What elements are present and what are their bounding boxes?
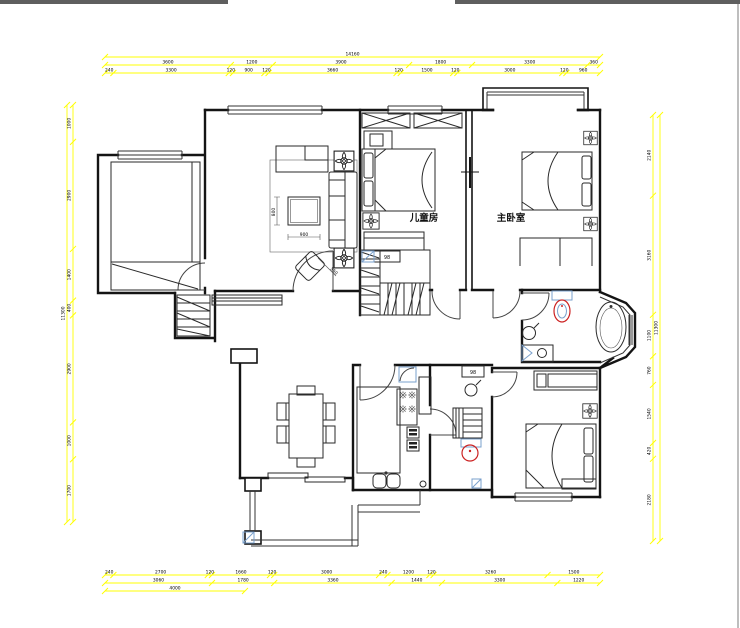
toilet-1 [552,291,572,322]
svg-text:3300: 3300 [494,578,505,584]
bathroom-1 [522,291,626,362]
svg-text:120: 120 [427,570,436,576]
window-top-border-bar [455,0,740,4]
svg-text:1200: 1200 [246,60,257,66]
wardrobe: 98 [360,250,430,315]
children-bed [362,149,435,211]
dimension-chain-right: 1130021403160110076015404202180 [647,112,664,544]
svg-text:400: 400 [67,304,73,313]
bathtub [596,302,626,352]
bedroom-door [492,372,517,397]
doors [178,251,549,435]
svg-text:3000: 3000 [504,68,515,74]
kitchen-door-symbol-box [399,367,416,382]
svg-text:3160: 3160 [647,249,653,260]
svg-text:120: 120 [394,68,403,74]
svg-text:11300: 11300 [654,321,660,335]
master-bed [522,152,592,210]
drawer-stack [407,427,419,451]
bath2-tiny-label: 98 [470,370,476,376]
svg-text:3660: 3660 [327,68,338,74]
svg-text:120: 120 [560,68,569,74]
svg-text:14160: 14160 [346,52,360,58]
double-sink [373,471,400,488]
svg-text:3300: 3300 [524,60,535,66]
svg-text:3900: 3900 [335,60,346,66]
kitchen-door [360,365,395,400]
floor-drain [472,479,481,488]
svg-text:1780: 1780 [237,578,248,584]
master-door [493,291,520,318]
master-bedroom: 主卧室 [497,131,598,266]
bed-2 [526,424,596,488]
wardrobe-2 [534,371,597,390]
svg-text:120: 120 [451,68,460,74]
tv-cabinet [276,146,328,172]
sink-round [523,323,540,340]
plant-stand [363,213,379,229]
svg-text:960: 960 [579,68,588,74]
entry-mat [212,295,282,305]
svg-text:3360: 3360 [327,578,338,584]
shoe-cabinet [177,295,210,336]
svg-text:3260: 3260 [485,570,496,576]
top-cabinets [362,113,462,128]
balcony-sliding-door [268,473,345,482]
living-window [228,106,322,114]
window-top-border [0,0,740,4]
dining-table [277,386,335,467]
svg-text:1500: 1500 [421,68,432,74]
children-room-label: 儿童房 [409,212,439,224]
svg-text:2180: 2180 [647,494,653,505]
svg-text:4000: 4000 [169,586,180,592]
drain-icon [420,481,426,487]
master-nightstand [584,131,598,145]
dim-800: 800 [271,208,277,217]
svg-text:240: 240 [379,570,388,576]
entry-area [177,295,282,336]
svg-text:240: 240 [105,570,114,576]
svg-text:760: 760 [647,366,653,375]
svg-text:1540: 1540 [647,408,653,419]
svg-text:2140: 2140 [647,150,653,161]
svg-text:1220: 1220 [573,578,584,584]
coffee-table-dimensions: 800 900 [271,197,320,240]
master-bay-window [483,88,588,110]
rug-outline [270,160,357,252]
bedroom-window [515,493,572,501]
svg-text:360: 360 [590,60,599,66]
dimension-chain-left: 11300100029001400400290010001700 [61,102,77,525]
master-desk [520,238,592,266]
wall-break-marker [461,157,479,188]
bath-bay-window [600,297,632,363]
floor-plan-canvas: 800 900 550 [0,0,740,628]
shower [453,408,482,438]
closet-tiny-label: 98 [384,255,390,261]
dim-900: 900 [300,232,309,238]
left-room-window [118,151,182,159]
washing-machine [522,345,553,362]
svg-text:120: 120 [268,570,277,576]
sofa [329,172,357,248]
nightstand-lamp [364,131,392,149]
bedroom-2 [526,371,597,489]
svg-text:3300: 3300 [165,68,176,74]
kitchen [357,377,431,488]
master-nightstand [584,217,598,231]
svg-text:1100: 1100 [647,330,653,341]
svg-text:1500: 1500 [568,570,579,576]
svg-text:3000: 3000 [321,570,332,576]
svg-text:900: 900 [244,68,253,74]
children-room: 98 儿童房 [360,113,462,315]
plant-side-table [334,151,354,171]
master-bedroom-label: 主卧室 [497,212,526,224]
svg-text:420: 420 [647,447,653,456]
svg-text:120: 120 [227,68,236,74]
coffee-table [288,197,320,225]
svg-text:1400: 1400 [67,269,73,280]
children-door [432,291,460,319]
svg-text:1660: 1660 [235,570,246,576]
svg-text:120: 120 [206,570,215,576]
svg-text:1440: 1440 [411,578,422,584]
dimension-chain-top: 1416036001200390018003300360240330012090… [102,52,603,77]
svg-text:2700: 2700 [155,570,166,576]
dining-room [243,386,335,543]
svg-text:2900: 2900 [67,363,73,374]
nightstand-2 [583,404,597,418]
window-top-border-bar [0,0,228,4]
living-room: 800 900 550 [270,146,357,282]
toilet-2 [461,439,481,461]
living-hall-door [293,251,333,291]
sink-2 [465,380,481,396]
entry-column [231,349,257,363]
svg-text:240: 240 [105,68,114,74]
bath2-door [430,409,456,435]
svg-text:3060: 3060 [153,578,164,584]
svg-text:1700: 1700 [67,485,73,496]
svg-text:1800: 1800 [435,60,446,66]
svg-text:1200: 1200 [403,570,414,576]
svg-text:1000: 1000 [67,118,73,129]
svg-text:2900: 2900 [67,190,73,201]
bathroom-2: 98 [453,366,484,488]
desk [364,232,424,250]
svg-text:3600: 3600 [162,60,173,66]
svg-text:120: 120 [262,68,271,74]
bath1-door [522,293,549,320]
left-room-door [178,263,205,290]
svg-text:1000: 1000 [67,435,73,446]
svg-text:11300: 11300 [61,306,67,320]
dimension-chain-bottom: 2402700120166012030002401200120326015003… [102,570,603,595]
plant-side-table [334,248,354,268]
armchair [294,250,325,281]
